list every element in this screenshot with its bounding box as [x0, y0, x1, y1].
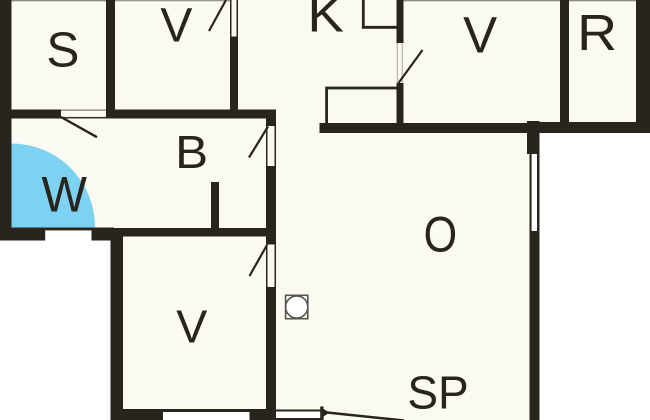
svg-text:S: S	[46, 23, 79, 78]
svg-text:B: B	[175, 126, 208, 178]
svg-text:O: O	[424, 207, 458, 263]
svg-text:K: K	[307, 0, 344, 43]
svg-text:V: V	[176, 300, 207, 352]
svg-text:W: W	[42, 167, 88, 223]
svg-text:R: R	[577, 4, 617, 61]
svg-text:SP: SP	[407, 366, 468, 418]
svg-text:V: V	[463, 7, 497, 64]
svg-text:V: V	[160, 0, 192, 52]
